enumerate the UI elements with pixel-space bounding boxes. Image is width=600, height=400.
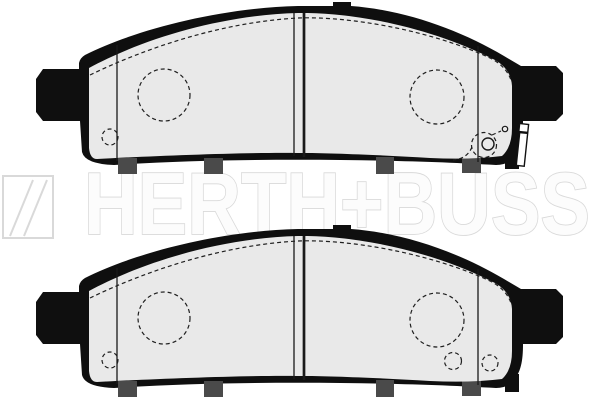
- brake-pad-top: [36, 2, 563, 174]
- drawing-canvas: HERTH+BUSS: [0, 0, 600, 400]
- logo-flash-line-1: [10, 180, 33, 236]
- logo-flash-line-2: [24, 180, 47, 236]
- clip-head: [519, 124, 529, 133]
- herth-buss-logo-icon: [3, 176, 53, 238]
- brake-pad-drawing: HERTH+BUSS: [0, 0, 600, 400]
